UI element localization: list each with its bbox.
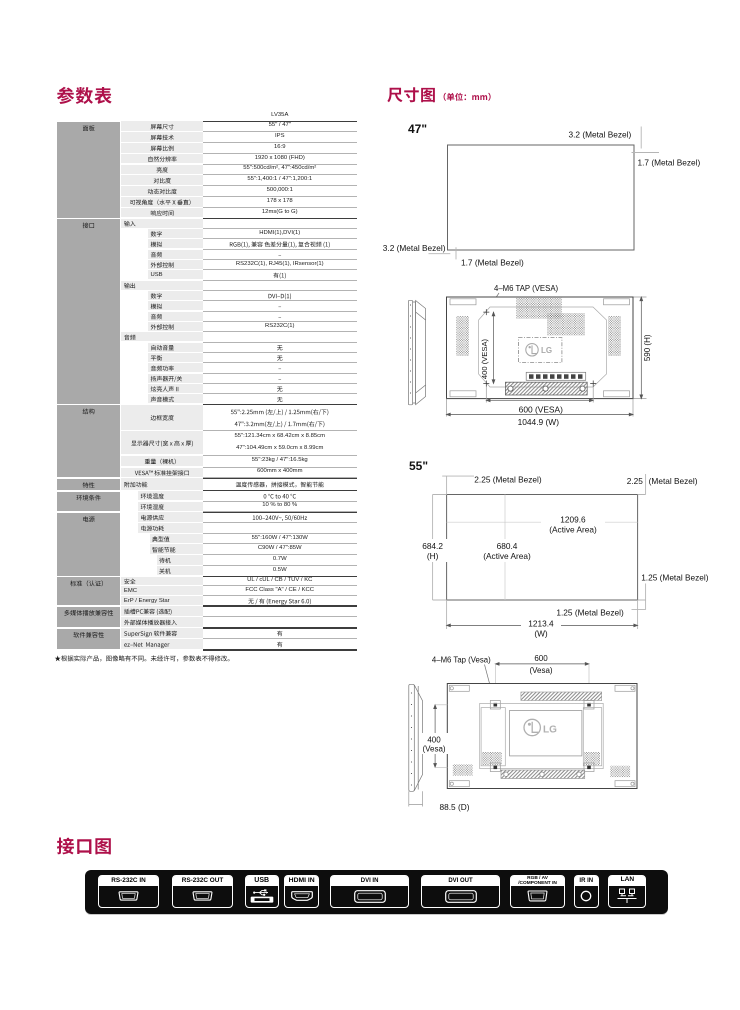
svg-text:1.25 (Metal Bezel): 1.25 (Metal Bezel) xyxy=(641,573,709,583)
svg-text:1044.9 (W): 1044.9 (W) xyxy=(518,417,560,427)
svg-text:684.2: 684.2 xyxy=(422,541,443,551)
svg-text:(Vesa): (Vesa) xyxy=(422,744,445,753)
svg-text:4–M6 Tap (Vesa): 4–M6 Tap (Vesa) xyxy=(432,656,491,665)
svg-text:1213.4: 1213.4 xyxy=(528,619,554,629)
svg-text:3.2 (Metal Bezel): 3.2 (Metal Bezel) xyxy=(383,243,446,253)
svg-text:600: 600 xyxy=(534,654,548,663)
svg-text:1.7 (Metal Bezel): 1.7 (Metal Bezel) xyxy=(461,258,524,268)
svg-text:400: 400 xyxy=(427,735,441,744)
svg-text:4–M6 TAP (VESA): 4–M6 TAP (VESA) xyxy=(494,284,559,293)
svg-text:LG: LG xyxy=(543,725,557,736)
svg-text:680.4: 680.4 xyxy=(497,541,518,551)
svg-text:590 (H): 590 (H) xyxy=(643,334,652,361)
svg-text:600 (VESA): 600 (VESA) xyxy=(519,405,563,415)
svg-text:LG: LG xyxy=(541,346,552,355)
svg-text:47": 47" xyxy=(408,122,427,136)
svg-text:3.2 (Metal Bezel): 3.2 (Metal Bezel) xyxy=(569,130,632,140)
svg-text:(Vesa): (Vesa) xyxy=(529,666,552,675)
svg-text:2.25 (Metal Bezel): 2.25 (Metal Bezel) xyxy=(474,475,542,485)
svg-text:1209.6: 1209.6 xyxy=(560,515,586,525)
svg-text:(W): (W) xyxy=(534,628,548,638)
svg-text:55": 55" xyxy=(409,459,428,473)
svg-text:1.25 (Metal Bezel): 1.25 (Metal Bezel) xyxy=(556,608,624,618)
svg-text:400 (VESA): 400 (VESA) xyxy=(480,338,489,379)
svg-text:1.7 (Metal Bezel): 1.7 (Metal Bezel) xyxy=(638,158,701,168)
svg-text:2.25 (Metal Bezel): 2.25 (Metal Bezel) xyxy=(627,476,698,486)
svg-text:88.5 (D): 88.5 (D) xyxy=(440,802,470,812)
svg-text:(Active Area): (Active Area) xyxy=(549,524,597,534)
svg-text:(Active Area): (Active Area) xyxy=(483,551,531,561)
svg-text:(H): (H) xyxy=(427,551,439,561)
